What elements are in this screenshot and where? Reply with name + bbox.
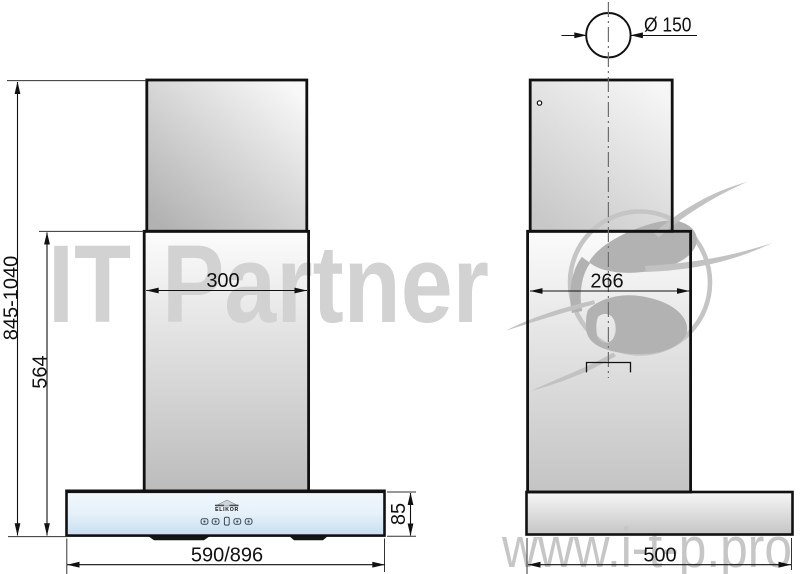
- svg-text:Ø 150: Ø 150: [644, 15, 692, 37]
- svg-text:85: 85: [388, 503, 410, 525]
- svg-text:845-1040: 845-1040: [1, 256, 23, 341]
- svg-text:300: 300: [206, 270, 239, 292]
- svg-text:ELIKOR: ELIKOR: [215, 507, 239, 513]
- svg-text:564: 564: [30, 355, 52, 388]
- svg-text:266: 266: [590, 271, 623, 293]
- svg-text:500: 500: [643, 544, 676, 566]
- svg-text:590/896: 590/896: [191, 544, 263, 566]
- svg-text:IT Partner: IT Partner: [48, 223, 489, 346]
